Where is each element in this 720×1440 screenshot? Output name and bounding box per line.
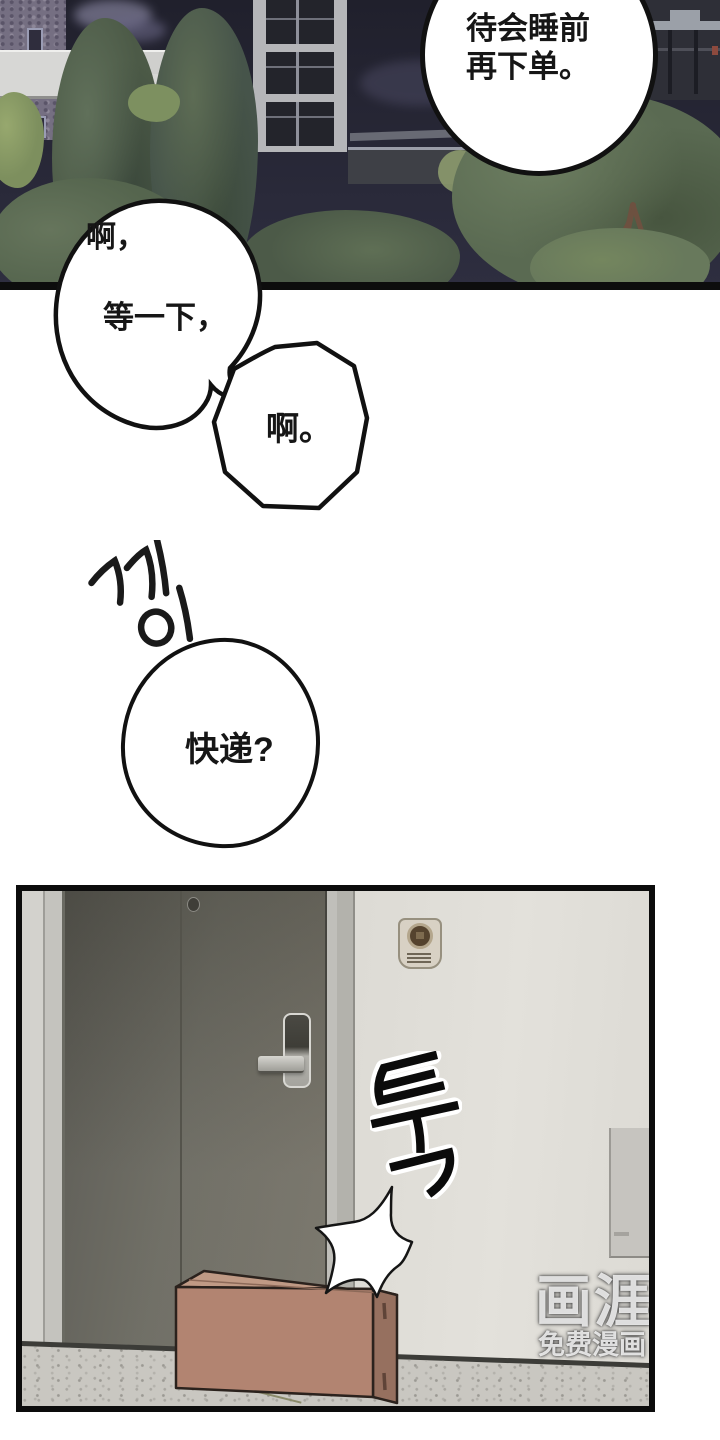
door-frame-left <box>45 891 65 1406</box>
intercom-lens-square <box>416 932 424 939</box>
order-text-line1: 待会睡前 <box>466 10 590 48</box>
red-light-dot <box>712 46 718 55</box>
floor-slab <box>253 44 347 52</box>
building-post <box>694 30 698 94</box>
wait-interjection-text: 啊， <box>86 212 146 256</box>
door-lock-handle <box>258 1056 304 1073</box>
floor-slab <box>253 94 347 102</box>
impact-star <box>313 1183 415 1300</box>
panel-hallway: 画涯 免费漫画 <box>16 885 655 1412</box>
wait-main-text: 等一下， <box>103 292 227 337</box>
speech-bubble-order-text: 待会睡前 再下单。 <box>466 10 590 86</box>
order-text-line2: 再下单。 <box>466 48 590 86</box>
building-post <box>668 30 672 94</box>
comic-page: 待会睡前 再下单。 啊， 等一下， 啊。 快递? <box>0 0 720 1440</box>
bush-light-mid <box>128 84 180 122</box>
watermark-tagline: 免费漫画 <box>538 1323 646 1362</box>
thud-sfx <box>370 1051 462 1199</box>
parapet-notch <box>670 10 700 22</box>
delivery-text: 快递? <box>185 722 274 771</box>
utility-panel <box>609 1128 655 1258</box>
intercom-speaker-grille <box>407 953 431 965</box>
peephole <box>187 897 200 912</box>
building-center-glass <box>266 0 334 146</box>
box-front-face <box>176 1287 373 1397</box>
ah-text: 啊。 <box>266 402 332 450</box>
door-lock-body <box>283 1013 311 1088</box>
side-wall-strip <box>22 891 45 1406</box>
utility-panel-label <box>614 1232 629 1236</box>
